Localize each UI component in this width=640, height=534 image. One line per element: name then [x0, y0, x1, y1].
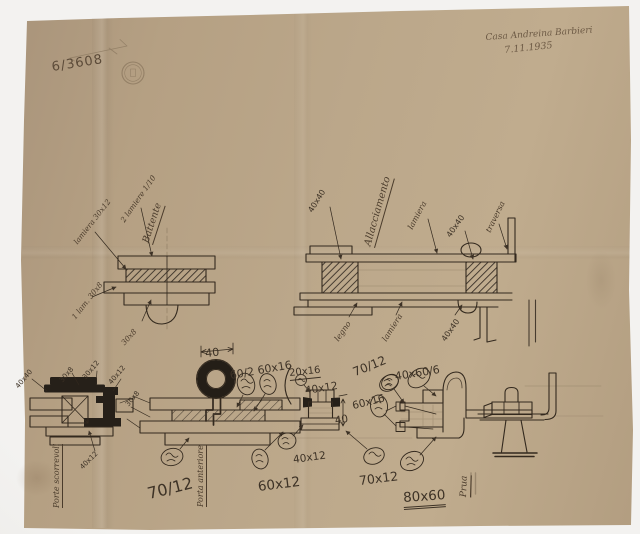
drawing-d-dimension: 40: [205, 346, 220, 360]
drawing-e-dimension: 40: [334, 413, 349, 427]
drawing-d-title: Porta anteriore: [196, 445, 207, 507]
detail-drawing-support-foot: [478, 373, 556, 457]
round-stamp-icon: [122, 62, 144, 84]
drawing-c-title: Porte scorrevoli: [52, 444, 63, 508]
ink-linework: [30, 207, 556, 474]
drawing-f-size-large: 80x60: [403, 487, 447, 510]
detail-drawing-door-rail: [30, 371, 150, 451]
photo-of-technical-drawing: 6/3608 Casa Andreina Barbieri 7.11.1935 …: [0, 0, 640, 534]
drawing-f-word: Prua: [459, 475, 472, 497]
